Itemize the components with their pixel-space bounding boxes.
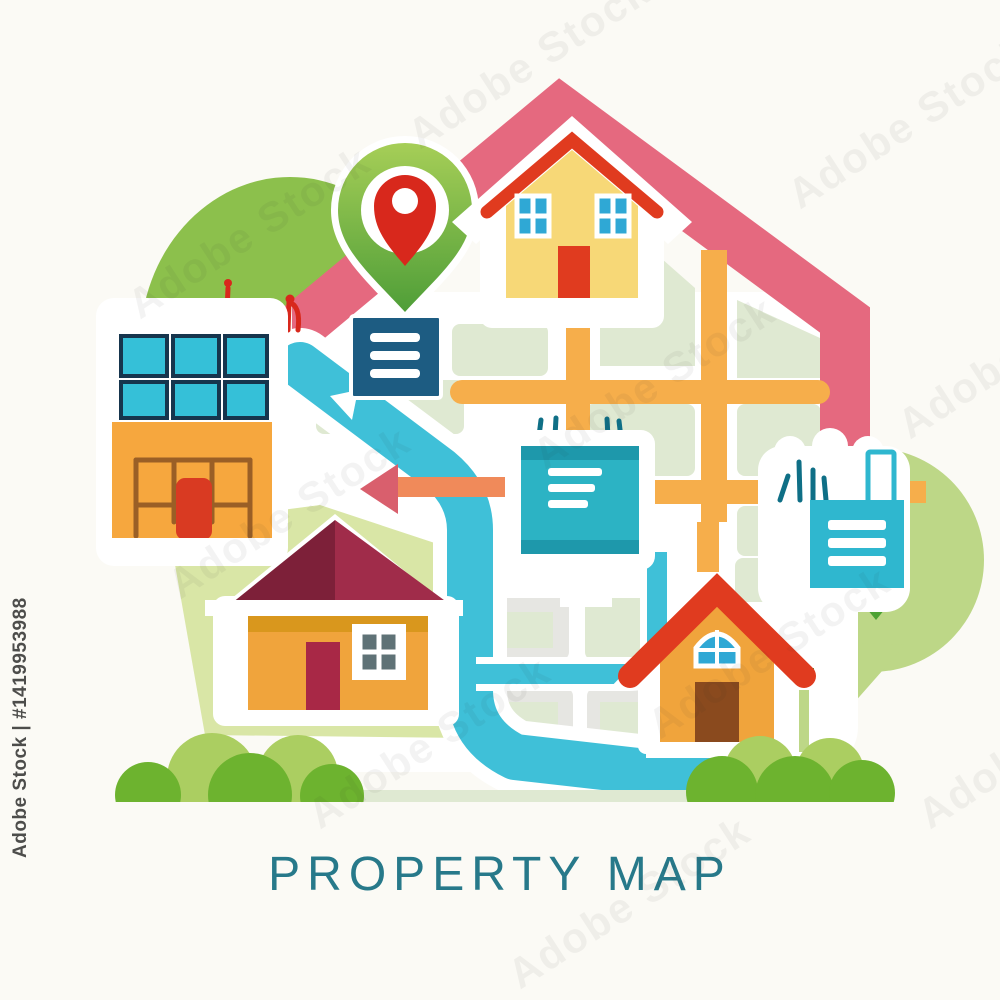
base-band	[230, 710, 444, 726]
solar-panel	[225, 336, 267, 376]
door	[558, 246, 590, 298]
solar-panel	[121, 336, 167, 376]
text-line	[828, 538, 886, 548]
watermark-ghost: Adobe Stock	[889, 256, 1000, 447]
solar-panel	[121, 382, 167, 418]
panel-bottom-band	[521, 540, 639, 554]
text-line	[548, 484, 595, 492]
solar-panel	[225, 382, 267, 418]
solar-panels	[121, 336, 267, 418]
map-block	[452, 324, 548, 376]
door	[306, 642, 340, 712]
text-line	[548, 500, 588, 508]
map-block-inner	[503, 612, 553, 648]
menu-line	[370, 369, 420, 378]
solar-panel	[173, 382, 219, 418]
eave-band	[205, 600, 463, 616]
property-map-illustration: PROPERTY MAP Adobe Stock Adobe Stock Ado…	[0, 0, 1000, 1000]
menu-line	[370, 333, 420, 342]
sticker-stem	[560, 565, 612, 607]
ground-cover	[0, 802, 1000, 1000]
arrow-shaft	[392, 477, 518, 497]
solar-panel	[173, 336, 219, 376]
text-line	[828, 520, 886, 530]
door	[176, 478, 212, 540]
sketch-tick	[824, 478, 826, 500]
tree-stem	[799, 690, 809, 752]
menu-sign-icon	[351, 316, 441, 398]
menu-line	[370, 351, 420, 360]
sketch-tick	[799, 462, 800, 500]
watermark-ghost: Adobe Stock	[779, 26, 1000, 217]
stock-illustration-canvas: PROPERTY MAP Adobe Stock Adobe Stock Ado…	[0, 0, 1000, 1000]
pin-hole	[392, 188, 418, 214]
sketch-dot	[224, 279, 232, 287]
sketch-tick	[288, 303, 289, 330]
sticker-bump	[812, 428, 848, 464]
watermark-credit: Adobe Stock | #1419953988	[10, 597, 31, 858]
chimney-outline	[868, 452, 894, 504]
